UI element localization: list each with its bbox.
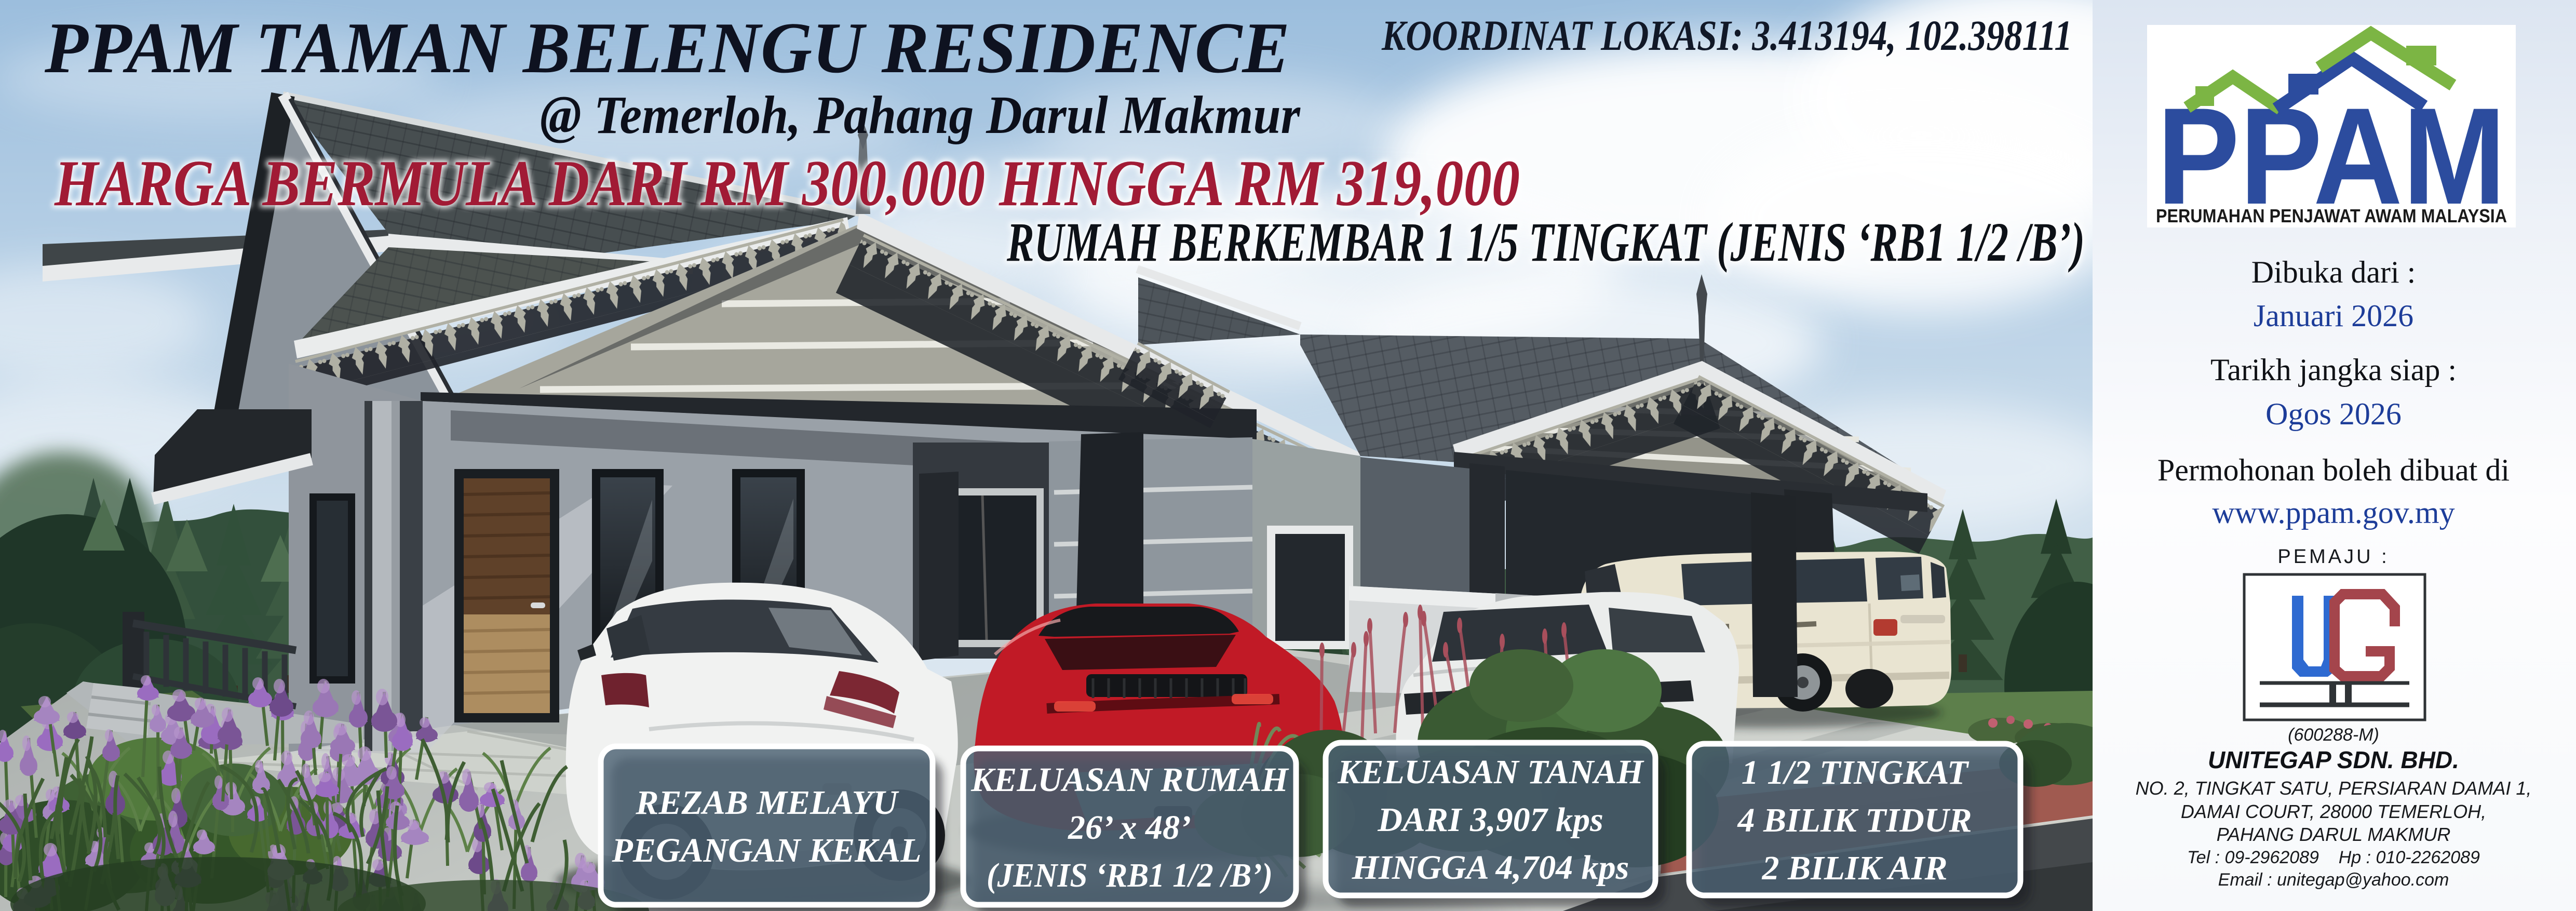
svg-text:(JENIS ‘RB1 1/2 /B’): (JENIS ‘RB1 1/2 /B’) [987,856,1273,894]
svg-text:RUMAH BERKEMBAR 1 1/5 TINGKAT: RUMAH BERKEMBAR 1 1/5 TINGKAT (JENIS ‘RB… [1006,212,2085,273]
svg-text:DARI 3,907 kps: DARI 3,907 kps [1377,801,1603,839]
svg-text:Ogos 2026: Ogos 2026 [2265,397,2402,431]
svg-text:Tarikh jangka siap :: Tarikh jangka siap : [2210,353,2457,387]
svg-text:HINGGA 4,704 kps: HINGGA 4,704 kps [1352,849,1629,887]
svg-text:@ Temerloh, Pahang Darul Makmu: @ Temerloh, Pahang Darul Makmur [540,85,1301,145]
svg-text:26’ x 48’: 26’ x 48’ [1068,809,1191,847]
svg-text:Permohonan boleh dibuat di: Permohonan boleh dibuat di [2157,453,2510,487]
svg-text:NO. 2, TINGKAT SATU, PERSIARAN: NO. 2, TINGKAT SATU, PERSIARAN DAMAI 1, [2136,778,2532,799]
svg-text:DAMAI COURT, 28000 TEMERLOH,: DAMAI COURT, 28000 TEMERLOH, [2181,801,2486,822]
svg-text:(600288-M): (600288-M) [2288,725,2379,745]
svg-text:KELUASAN RUMAH: KELUASAN RUMAH [970,761,1289,799]
svg-text:PAHANG DARUL MAKMUR: PAHANG DARUL MAKMUR [2217,824,2451,845]
svg-text:PPAM TAMAN BELENGU RESIDENCE: PPAM TAMAN BELENGU RESIDENCE [44,8,1290,88]
svg-text:PEMAJU :: PEMAJU : [2277,546,2389,568]
svg-text:Tel : 09-2962089 Hp : 010-2: Tel : 09-2962089 Hp : 010-2262089 [2187,848,2480,867]
svg-text:www.ppam.gov.my: www.ppam.gov.my [2212,495,2454,530]
svg-text:1 1/2 TINGKAT: 1 1/2 TINGKAT [1742,754,1970,792]
svg-text:REZAB MELAYU: REZAB MELAYU [635,784,899,822]
svg-text:Dibuka dari :: Dibuka dari : [2251,255,2416,289]
svg-text:HARGA BERMULA DARI RM 300,000: HARGA BERMULA DARI RM 300,000 HINGGA RM … [54,148,1520,220]
svg-text:PERUMAHAN PENJAWAT AWAM MALAYS: PERUMAHAN PENJAWAT AWAM MALAYSIA [2156,205,2507,226]
svg-text:4 BILIK TIDUR: 4 BILIK TIDUR [1736,801,1972,839]
svg-text:PEGANGAN KEKAL: PEGANGAN KEKAL [612,832,922,869]
svg-text:KELUASAN TANAH: KELUASAN TANAH [1337,753,1644,791]
svg-text:UNITEGAP SDN. BHD.: UNITEGAP SDN. BHD. [2208,746,2459,773]
svg-text:2 BILIK AIR: 2 BILIK AIR [1761,849,1947,887]
svg-text:Email : unitegap@yahoo.com: Email : unitegap@yahoo.com [2218,870,2449,890]
svg-text:KOORDINAT LOKASI: 3.413194, 10: KOORDINAT LOKASI: 3.413194, 102.398111 [1381,11,2072,59]
svg-text:Januari 2026: Januari 2026 [2254,299,2413,333]
